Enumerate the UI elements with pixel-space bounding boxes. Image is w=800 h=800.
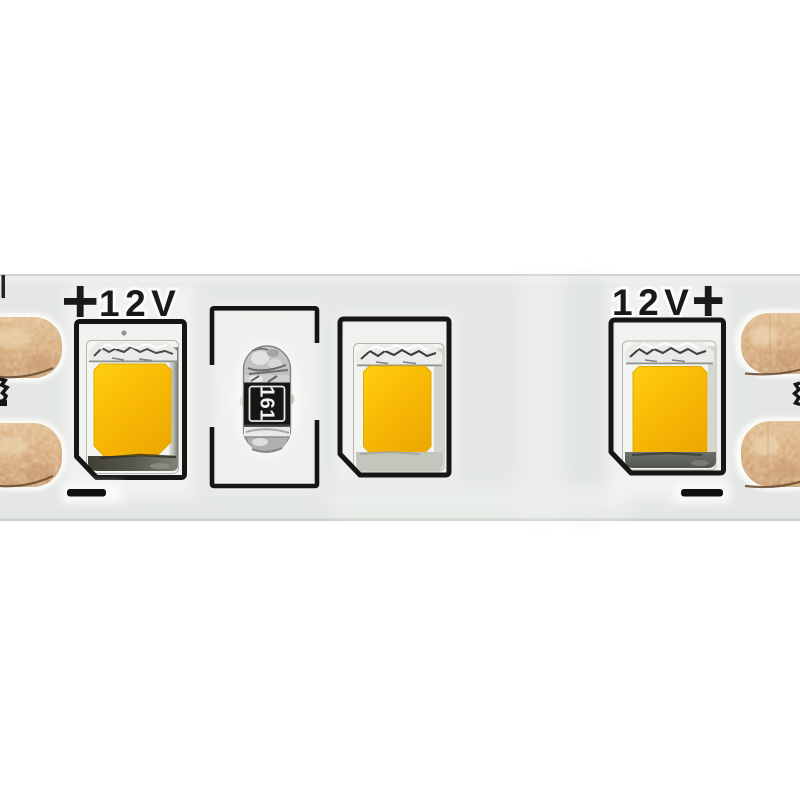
svg-text:12V: 12V xyxy=(612,282,694,323)
svg-text:161: 161 xyxy=(256,386,278,421)
svg-text:12V: 12V xyxy=(99,283,181,324)
